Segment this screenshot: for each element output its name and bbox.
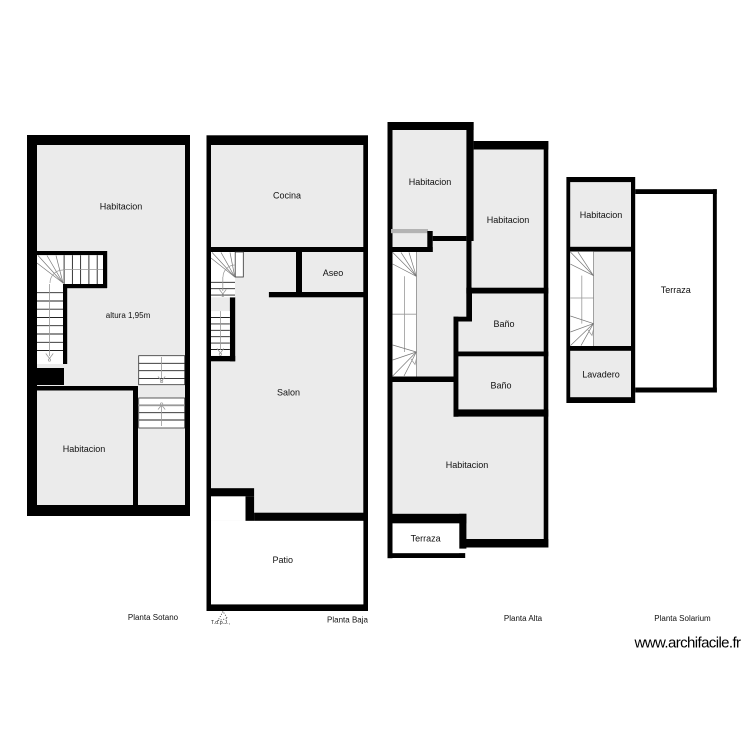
svg-text:Habitacion: Habitacion [580, 210, 623, 220]
svg-text:Patio: Patio [273, 555, 294, 565]
svg-text:Planta Alta: Planta Alta [504, 614, 543, 623]
svg-text:www.archifacile.fr: www.archifacile.fr [634, 635, 742, 652]
svg-text:Baño: Baño [493, 319, 514, 329]
svg-text:Planta Sotano: Planta Sotano [128, 613, 179, 622]
svg-text:Cocina: Cocina [273, 191, 301, 201]
svg-text:Habitacion: Habitacion [487, 215, 530, 225]
svg-text:Aseo: Aseo [323, 268, 344, 278]
svg-text:T.d.p.J.,: T.d.p.J., [211, 620, 230, 626]
svg-text:Baño: Baño [490, 381, 511, 391]
svg-text:Terraza: Terraza [661, 285, 691, 295]
svg-text:Habitacion: Habitacion [446, 460, 489, 470]
svg-text:Habitacion: Habitacion [100, 202, 143, 212]
svg-text:Terraza: Terraza [411, 534, 441, 544]
svg-text:altura 1,95m: altura 1,95m [106, 311, 151, 320]
svg-text:Salon: Salon [277, 388, 300, 398]
svg-text:Planta Solarium: Planta Solarium [654, 614, 711, 623]
svg-text:Habitacion: Habitacion [409, 177, 452, 187]
svg-text:Planta Baja: Planta Baja [327, 615, 368, 624]
svg-text:Habitacion: Habitacion [63, 444, 106, 454]
svg-text:Lavadero: Lavadero [582, 369, 620, 379]
